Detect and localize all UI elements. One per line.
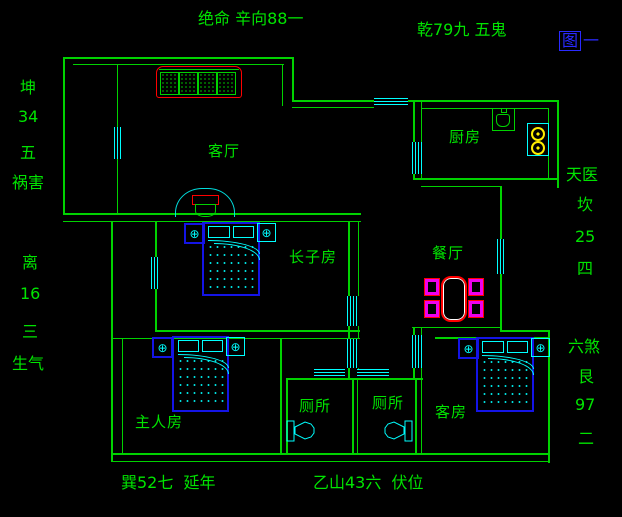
- tv-cabinet: [175, 188, 235, 217]
- nightstand-lamp: ⊕: [152, 337, 173, 358]
- window-symbol: [347, 339, 359, 368]
- wall-segment: [111, 221, 113, 462]
- nightstand-lamp: ⊕: [531, 338, 550, 357]
- room-label-master: 主人房: [135, 415, 183, 430]
- pillow: [507, 341, 529, 353]
- wall-segment: [155, 330, 360, 332]
- sofa: [156, 66, 242, 98]
- sink-basin: [496, 114, 510, 127]
- nightstand-lamp: ⊕: [257, 223, 276, 242]
- annotation-top-right: 乾79九 五鬼: [417, 22, 506, 38]
- annotation-right-lower-rank: 二: [578, 431, 594, 447]
- dining-chair: [424, 300, 440, 318]
- annotation-right-lower-trigram: 艮: [578, 369, 594, 385]
- annotation-left-upper-numbers: 34: [18, 109, 38, 125]
- window-symbol: [114, 127, 122, 159]
- bed-headboard: [204, 224, 258, 240]
- nightstand-lamp: ⊕: [458, 338, 479, 359]
- window-symbol: [314, 369, 345, 378]
- window-symbol: [374, 98, 408, 107]
- wall-segment: [292, 100, 559, 102]
- bed-master: [172, 336, 229, 412]
- dining-chair: [424, 278, 440, 296]
- annotation-top-center: 绝命 辛向88一: [198, 11, 303, 27]
- wall-segment: [63, 57, 294, 59]
- stove-burner: [531, 141, 545, 155]
- room-label-dining: 餐厅: [432, 246, 464, 261]
- dining-chair: [468, 300, 484, 318]
- dining-table: [441, 276, 467, 322]
- wall-segment: [421, 378, 422, 454]
- wall-segment: [557, 100, 559, 188]
- pillow: [208, 226, 230, 238]
- stove-burner: [531, 127, 545, 141]
- pillow: [202, 340, 223, 352]
- wall-segment: [412, 327, 502, 328]
- annotation-left-upper-trigram: 坤: [20, 80, 36, 96]
- window-symbol: [412, 142, 422, 174]
- pillow: [233, 226, 255, 238]
- dining-chair: [468, 278, 484, 296]
- wall-segment: [111, 453, 550, 455]
- wall-segment: [352, 378, 354, 454]
- wall-segment: [500, 330, 550, 332]
- figure-label: 图一: [559, 31, 599, 51]
- annotation-right-upper-numbers: 25: [575, 229, 595, 245]
- annotation-left-upper-star: 祸害: [12, 175, 44, 191]
- window-symbol: [151, 257, 159, 289]
- bed-guest: [476, 337, 534, 412]
- annotation-right-lower-numbers: 97: [575, 397, 595, 413]
- pillow: [178, 340, 199, 352]
- wall-segment: [421, 186, 501, 187]
- annotation-right-upper-trigram: 坎: [577, 197, 593, 213]
- kitchen-stove: [527, 123, 549, 156]
- wall-segment: [286, 378, 423, 380]
- sofa-back: [159, 69, 239, 70]
- wall-segment: [415, 378, 417, 454]
- kitchen-sink: [492, 108, 515, 131]
- bed-headboard: [174, 338, 227, 354]
- toilet-fixture-left: [286, 418, 318, 448]
- window-symbol: [347, 296, 359, 326]
- window-symbol: [357, 369, 389, 378]
- sofa-cushion: [160, 72, 179, 95]
- wall-segment: [63, 57, 65, 215]
- annotation-left-lower-trigram: 离: [22, 255, 38, 271]
- sink-tap: [501, 108, 507, 113]
- annotation-right-upper-rank: 四: [577, 261, 593, 277]
- nightstand-lamp: ⊕: [184, 223, 205, 244]
- wall-segment: [413, 178, 559, 180]
- room-label-toilet-left: 厕所: [299, 399, 331, 414]
- window-symbol: [497, 239, 505, 274]
- annotation-left-lower-rank: 三: [22, 324, 38, 340]
- wall-segment: [357, 378, 358, 454]
- room-label-guest: 客房: [435, 405, 467, 420]
- nightstand-lamp: ⊕: [226, 337, 245, 356]
- bed-headboard: [478, 339, 532, 355]
- wall-segment: [111, 461, 550, 462]
- pillow: [482, 341, 504, 353]
- sofa-cushion: [198, 72, 217, 95]
- figure-boxed-char: 图: [559, 31, 581, 51]
- wall-segment: [282, 64, 283, 106]
- annotation-left-lower-numbers: 16: [20, 286, 40, 302]
- wall-segment: [280, 338, 282, 454]
- annotation-right-lower-star: 六煞: [568, 339, 600, 355]
- wall-segment: [292, 57, 294, 102]
- wall-segment: [73, 64, 284, 65]
- figure-suffix: 一: [583, 33, 599, 49]
- wall-segment: [122, 338, 123, 454]
- floor-plan-canvas: 绝命 辛向88一 乾79九 五鬼 图一 坤 34 五 祸害 离 16 三 生气 …: [0, 0, 622, 517]
- annotation-right-upper-star: 天医: [566, 167, 598, 183]
- sofa-cushion: [179, 72, 198, 95]
- room-label-toilet-right: 厕所: [372, 396, 404, 411]
- annotation-bottom-left: 巽52七 延年: [121, 475, 216, 491]
- toilet-fixture-right: [381, 418, 413, 448]
- room-label-kitchen: 厨房: [449, 130, 481, 145]
- room-label-living: 客厅: [208, 144, 240, 159]
- window-symbol: [412, 335, 422, 368]
- annotation-left-upper-rank: 五: [20, 145, 36, 161]
- bed-eldest-son: [202, 222, 260, 296]
- sofa-cushion: [217, 72, 236, 95]
- tv-screen: [195, 204, 216, 217]
- annotation-left-lower-star: 生气: [12, 356, 44, 372]
- room-label-eldest-son: 长子房: [289, 250, 337, 265]
- wall-segment: [421, 108, 549, 109]
- annotation-bottom-center: 乙山43六 伏位: [313, 475, 424, 491]
- wall-segment: [292, 107, 374, 108]
